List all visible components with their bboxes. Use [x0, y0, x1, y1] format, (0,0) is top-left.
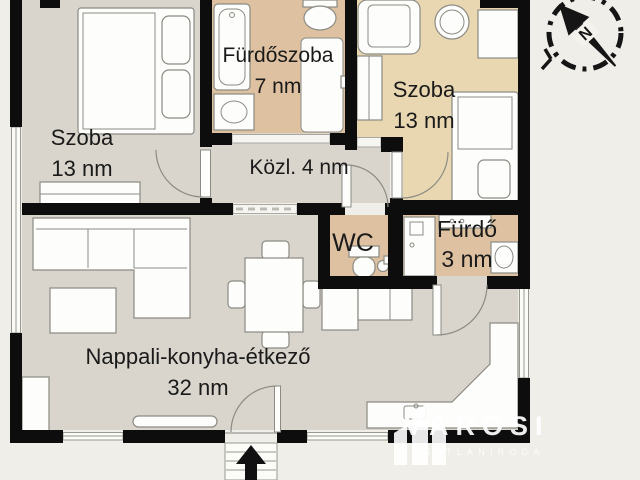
- room-area: 13 nm: [20, 153, 144, 184]
- opening-bathroom: [232, 135, 330, 144]
- tv-board: [133, 416, 217, 427]
- label-nappali: Nappali-konyha-étkező 32 nm: [48, 341, 348, 403]
- label-furdo: Fürdő 3 nm: [417, 214, 517, 274]
- compass: N: [542, 0, 626, 76]
- room-area: 32 nm: [48, 372, 348, 403]
- dining-chair-top: [262, 241, 289, 259]
- label-kozlekedo: Közl. 4 nm: [224, 152, 374, 183]
- bathroom-toilet: [303, 0, 337, 30]
- room-area: 13 nm: [362, 105, 486, 136]
- door-leaf-szoba-left: [201, 150, 211, 197]
- room-area: 7 nm: [203, 71, 353, 102]
- room-name: Szoba: [362, 74, 486, 105]
- building-icon: [394, 403, 446, 467]
- entrance: [225, 433, 277, 480]
- floor-plan: N Szoba 13 nm Fürdőszoba 7 nm Szoba 13 n…: [0, 0, 640, 480]
- room-name: Szoba: [20, 122, 144, 153]
- fridge: [322, 287, 358, 330]
- dining-chair-right: [303, 281, 320, 308]
- agency-logo: VÁROSI INGATLANIRODA: [394, 403, 550, 457]
- label-szoba-right: Szoba 13 nm: [362, 74, 486, 136]
- room-name: Közl. 4 nm: [224, 152, 374, 183]
- double-bed: [78, 8, 194, 134]
- label-furdoszoba: Fürdőszoba 7 nm: [203, 40, 353, 102]
- coffee-table: [50, 288, 116, 333]
- room-name: Fürdőszoba: [203, 40, 353, 71]
- opening-szoba-right: [357, 138, 381, 148]
- armchair: [358, 0, 420, 54]
- door-leaf-szoba-right: [392, 152, 402, 198]
- room-name: Nappali-konyha-étkező: [48, 341, 348, 372]
- room-name: WC: [322, 230, 384, 256]
- label-szoba-left: Szoba 13 nm: [20, 122, 144, 184]
- desk: [478, 10, 518, 58]
- kitchen-cabinet: [358, 287, 412, 320]
- round-table: [435, 5, 469, 39]
- label-wc: WC: [322, 230, 384, 256]
- compass-fletch: [542, 49, 551, 69]
- dining-table: [245, 258, 303, 332]
- room-name: Fürdő: [417, 214, 517, 244]
- dining-chair-left: [228, 281, 245, 308]
- door-leaf-furdo: [433, 285, 441, 335]
- room-area: 3 nm: [417, 244, 517, 274]
- cabinet-left: [22, 377, 49, 432]
